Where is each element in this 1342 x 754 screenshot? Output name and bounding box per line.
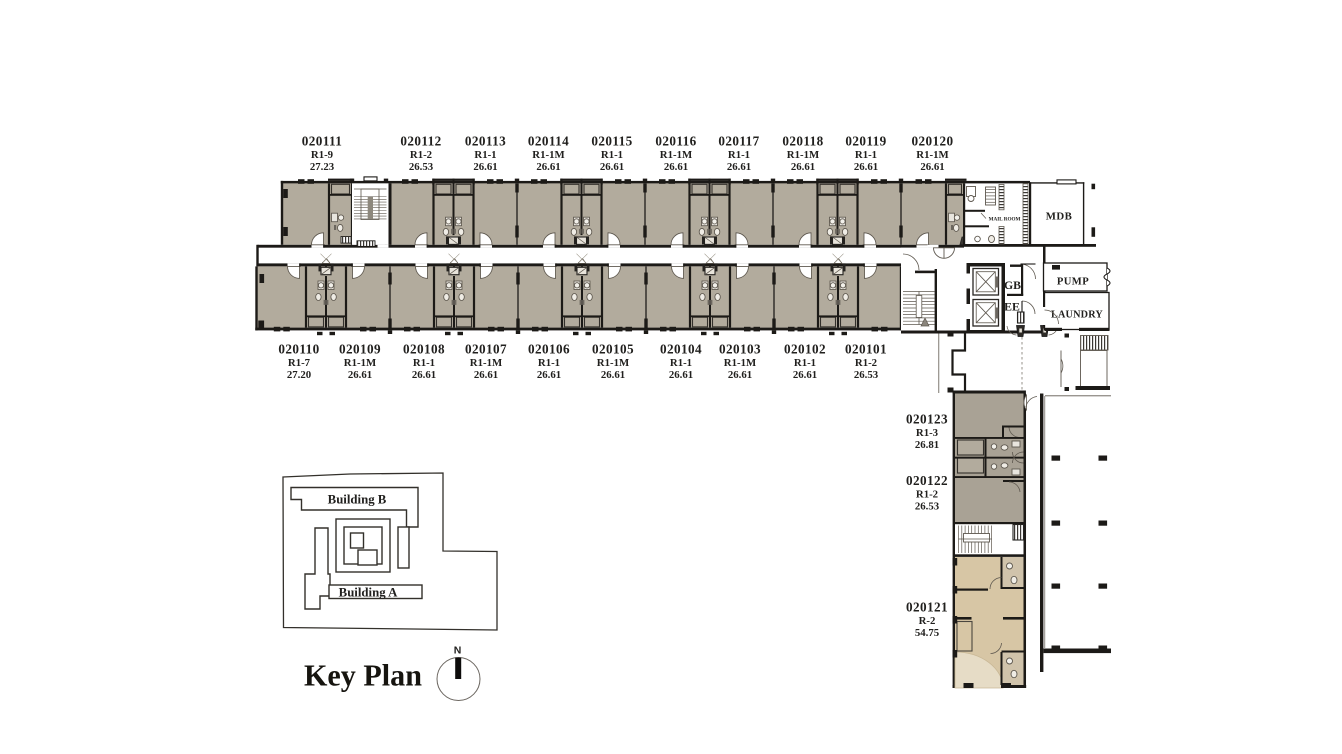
svg-text:R1-1M: R1-1M [470,357,502,369]
svg-text:020101: 020101 [845,342,887,357]
svg-text:GB: GB [1004,278,1021,292]
svg-text:26.61: 26.61 [474,369,498,381]
svg-text:020113: 020113 [465,134,506,149]
svg-text:Building A: Building A [339,586,398,600]
svg-text:020119: 020119 [845,134,886,149]
svg-text:R1-9: R1-9 [311,149,334,161]
svg-text:27.20: 27.20 [287,369,311,381]
svg-text:R1-2: R1-2 [855,357,877,369]
svg-text:020117: 020117 [718,134,759,149]
svg-text:020120: 020120 [912,134,954,149]
svg-text:020106: 020106 [528,342,570,357]
svg-text:26.61: 26.61 [537,369,561,381]
svg-text:020110: 020110 [278,342,319,357]
svg-text:26.81: 26.81 [915,439,939,451]
svg-text:020112: 020112 [400,134,441,149]
svg-text:R1-7: R1-7 [288,357,311,369]
svg-text:26.53: 26.53 [915,501,940,513]
svg-text:26.61: 26.61 [473,161,497,173]
svg-text:26.61: 26.61 [600,161,624,173]
svg-text:N: N [454,645,462,657]
svg-text:R1-1: R1-1 [474,149,496,161]
svg-text:R1-2: R1-2 [916,489,938,501]
svg-text:R1-1: R1-1 [413,357,435,369]
svg-text:26.61: 26.61 [348,369,372,381]
svg-text:R1-1M: R1-1M [597,357,629,369]
svg-text:54.75: 54.75 [915,627,939,639]
svg-text:PUMP: PUMP [1057,277,1089,288]
svg-text:26.61: 26.61 [791,161,815,173]
svg-text:R1-2: R1-2 [410,149,432,161]
svg-text:020123: 020123 [906,412,948,427]
svg-text:26.53: 26.53 [854,369,879,381]
svg-text:26.61: 26.61 [920,161,944,173]
svg-text:020114: 020114 [528,134,569,149]
svg-text:Key Plan: Key Plan [304,658,422,693]
svg-text:Building B: Building B [328,493,387,507]
svg-text:020122: 020122 [906,473,948,488]
svg-text:R1-1: R1-1 [601,149,623,161]
svg-text:26.61: 26.61 [536,161,560,173]
svg-text:26.61: 26.61 [728,369,752,381]
svg-text:020105: 020105 [592,342,634,357]
svg-text:020116: 020116 [655,134,696,149]
svg-text:R1-1: R1-1 [794,357,816,369]
svg-text:EE: EE [1004,300,1020,314]
svg-text:R1-1: R1-1 [670,357,692,369]
svg-text:020103: 020103 [719,342,761,357]
svg-text:R1-1M: R1-1M [916,149,948,161]
svg-text:26.61: 26.61 [669,369,693,381]
svg-text:26.61: 26.61 [412,369,436,381]
svg-text:R1-1M: R1-1M [660,149,692,161]
svg-text:R1-1: R1-1 [538,357,560,369]
svg-text:R1-1M: R1-1M [344,357,376,369]
svg-text:27.23: 27.23 [310,161,335,173]
svg-text:R1-3: R1-3 [916,427,939,439]
svg-text:020108: 020108 [403,342,445,357]
svg-text:LAUNDRY: LAUNDRY [1051,310,1103,321]
svg-text:020111: 020111 [302,134,343,149]
svg-text:26.61: 26.61 [664,161,688,173]
svg-text:26.53: 26.53 [409,161,434,173]
svg-text:020107: 020107 [465,342,507,357]
svg-text:26.61: 26.61 [793,369,817,381]
svg-text:020102: 020102 [784,342,826,357]
svg-text:MAIL ROOM: MAIL ROOM [989,217,1021,223]
svg-text:R-2: R-2 [919,615,936,627]
svg-text:020118: 020118 [782,134,823,149]
svg-text:R1-1M: R1-1M [532,149,564,161]
svg-text:020104: 020104 [660,342,702,357]
svg-text:020109: 020109 [339,342,381,357]
svg-text:020115: 020115 [591,134,632,149]
svg-text:26.61: 26.61 [854,161,878,173]
svg-text:26.61: 26.61 [601,369,625,381]
svg-text:R1-1M: R1-1M [724,357,756,369]
svg-text:MDB: MDB [1046,211,1072,223]
svg-text:020121: 020121 [906,600,948,615]
svg-text:R1-1: R1-1 [728,149,750,161]
svg-text:26.61: 26.61 [727,161,751,173]
svg-text:R1-1: R1-1 [855,149,877,161]
svg-text:R1-1M: R1-1M [787,149,819,161]
